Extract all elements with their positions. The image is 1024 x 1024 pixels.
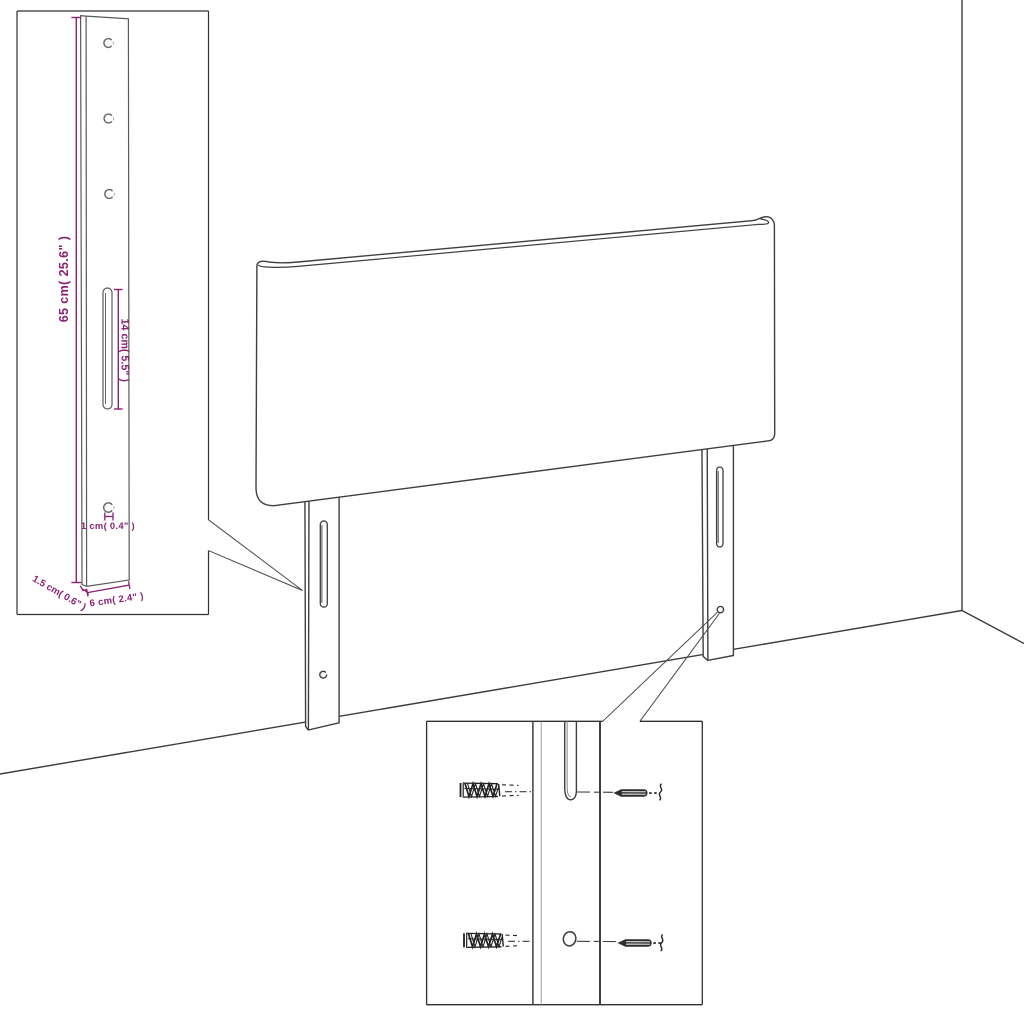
svg-text:1 cm( 0.4" ): 1 cm( 0.4" ) (81, 520, 135, 531)
svg-text:65 cm( 25.6" ): 65 cm( 25.6" ) (57, 236, 71, 323)
svg-text:14 cm( 5.5" ): 14 cm( 5.5" ) (119, 319, 131, 383)
